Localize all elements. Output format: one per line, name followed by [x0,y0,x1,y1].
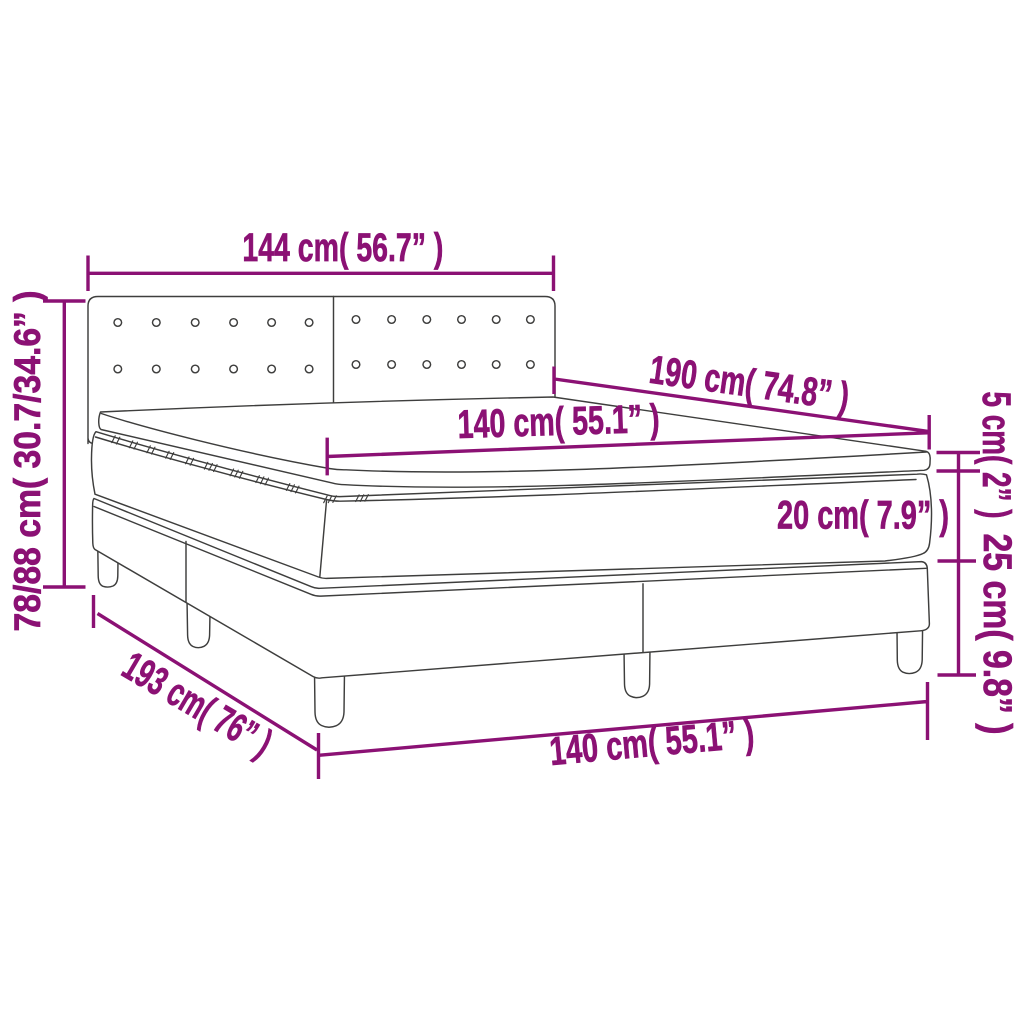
svg-text:5 cm( 2” ): 5 cm( 2” ) [974,392,1018,519]
svg-text:190 cm( 74.8” ): 190 cm( 74.8” ) [647,348,852,420]
svg-text:140 cm( 55.1” ): 140 cm( 55.1” ) [457,397,660,447]
svg-text:144 cm( 56.7” ): 144 cm( 56.7” ) [242,226,443,270]
svg-text:140 cm( 55.1” ): 140 cm( 55.1” ) [548,712,756,774]
svg-text:78/88 cm( 30.7/34.6” ): 78/88 cm( 30.7/34.6” ) [7,291,48,632]
svg-text:20 cm( 7.9” ): 20 cm( 7.9” ) [777,494,949,538]
svg-text:25 cm( 9.8” ): 25 cm( 9.8” ) [975,534,1019,735]
svg-text:193 cm( 76” ): 193 cm( 76” ) [115,644,280,766]
